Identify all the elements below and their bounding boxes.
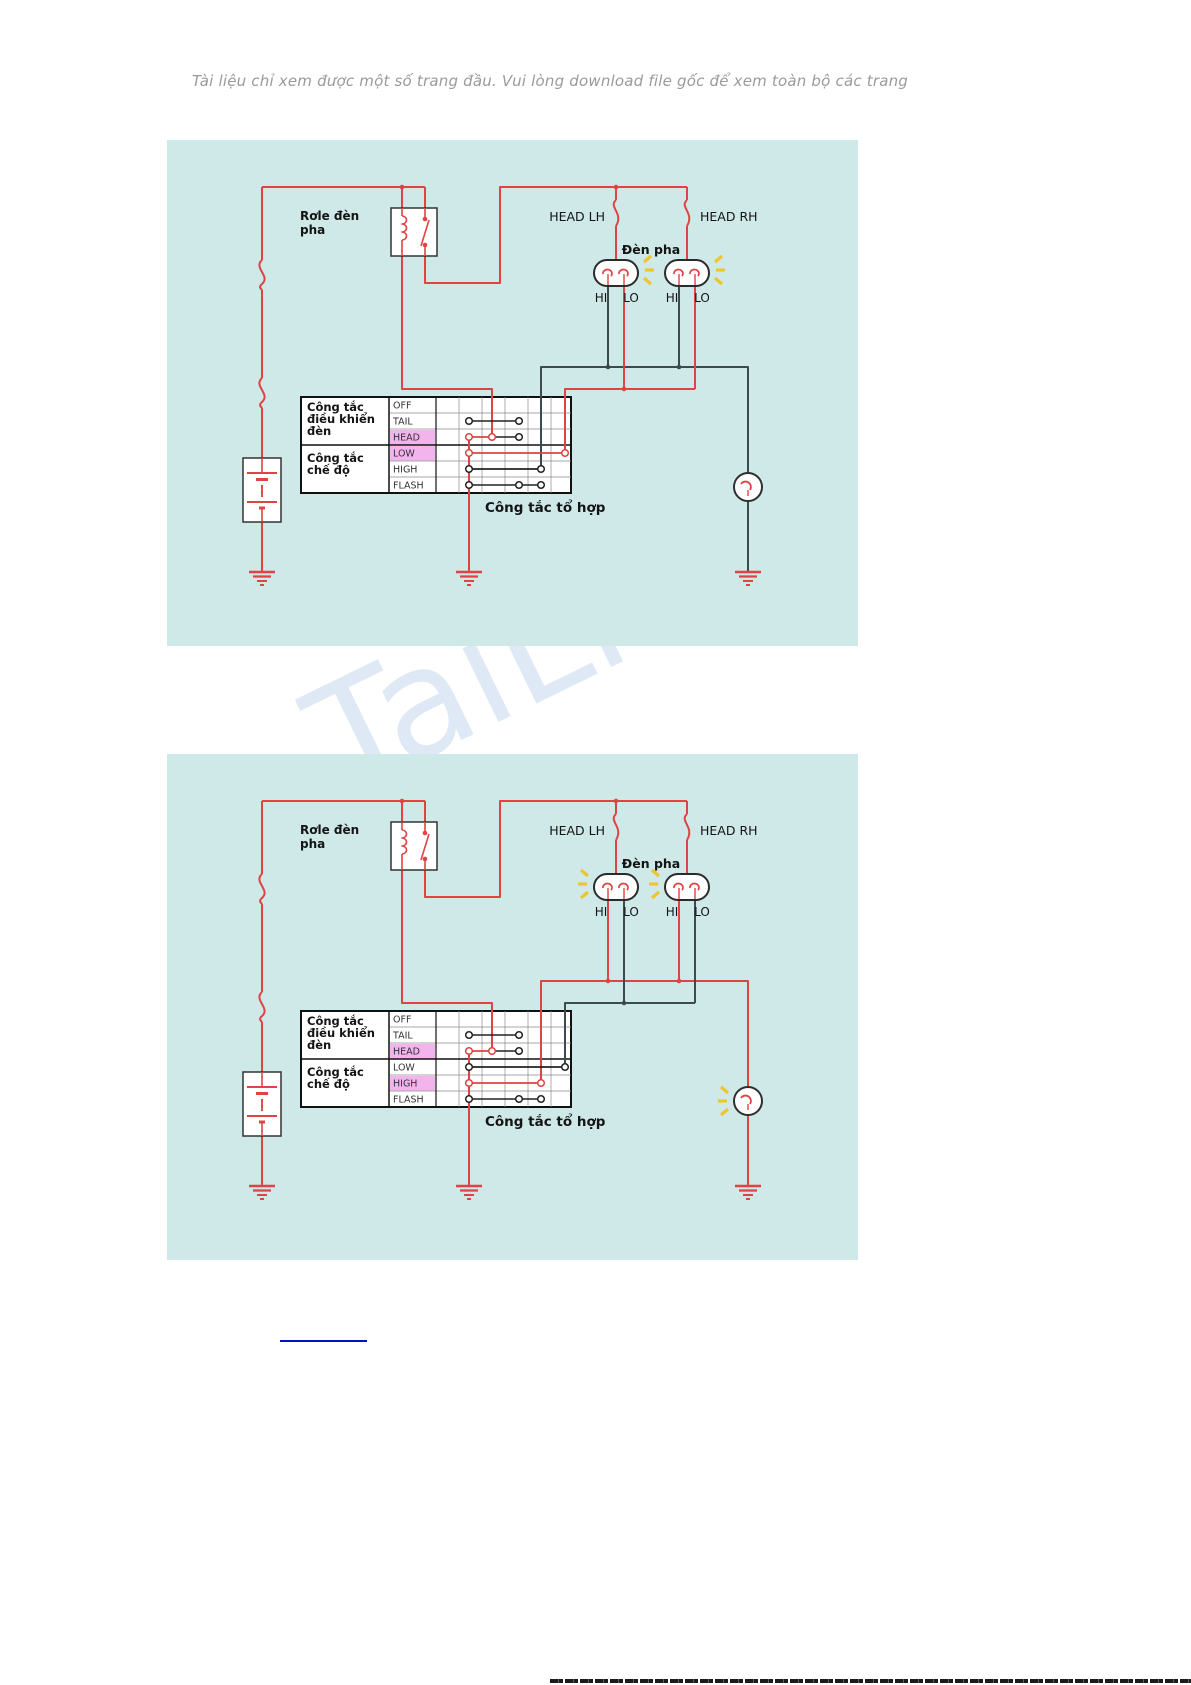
svg-text:Rơle đèn: Rơle đèn xyxy=(300,209,359,223)
svg-text:chế độ: chế độ xyxy=(307,1077,350,1091)
svg-text:HEAD: HEAD xyxy=(393,433,420,444)
high-beam-indicator-bulb xyxy=(734,473,762,501)
svg-text:OFF: OFF xyxy=(393,401,411,412)
svg-text:HEAD LH: HEAD LH xyxy=(549,823,605,838)
headlight-relay-box xyxy=(391,822,437,870)
ground-icon xyxy=(456,1186,482,1199)
combination-switch-table: OFFTAILHEADLOWHIGHFLASHCông tắcđiều khiể… xyxy=(301,1011,606,1130)
ground-icon xyxy=(735,572,761,585)
headlamp-right xyxy=(665,874,709,900)
svg-text:Rơle đèn: Rơle đèn xyxy=(300,823,359,837)
circuit-diagram-high-beam: OFFTAILHEADLOWHIGHFLASHCông tắcđiều khiể… xyxy=(167,754,858,1260)
svg-text:LOW: LOW xyxy=(393,449,415,460)
svg-text:đèn: đèn xyxy=(307,1038,331,1052)
battery xyxy=(243,1072,281,1136)
svg-text:Công tắc tổ hợp: Công tắc tổ hợp xyxy=(485,1113,606,1130)
headlight-relay-box xyxy=(391,208,437,256)
sparkle-icon xyxy=(644,256,654,284)
headlamp-right xyxy=(665,260,709,286)
svg-text:HEAD RH: HEAD RH xyxy=(700,209,758,224)
svg-text:Công tắc tổ hợp: Công tắc tổ hợp xyxy=(485,499,606,516)
ground-icon xyxy=(249,1186,275,1199)
ground-icon xyxy=(249,572,275,585)
high-beam-indicator-bulb xyxy=(734,1087,762,1115)
svg-text:LO: LO xyxy=(694,291,710,305)
svg-text:LO: LO xyxy=(623,291,639,305)
svg-text:HIGH: HIGH xyxy=(393,1079,417,1090)
battery xyxy=(243,458,281,522)
svg-text:FLASH: FLASH xyxy=(393,1095,424,1106)
ground-icon xyxy=(735,1186,761,1199)
svg-text:OFF: OFF xyxy=(393,1015,411,1026)
svg-text:TAIL: TAIL xyxy=(392,417,413,428)
ground-icon xyxy=(456,572,482,585)
page-separator-dashed-line xyxy=(550,1679,1191,1683)
svg-text:HIGH: HIGH xyxy=(393,465,417,476)
preview-notice-text: Tài liệu chỉ xem được một số trang đầu. … xyxy=(80,72,1020,90)
svg-text:LO: LO xyxy=(694,905,710,919)
svg-text:Đèn pha: Đèn pha xyxy=(622,242,680,257)
svg-text:đèn: đèn xyxy=(307,424,331,438)
svg-text:HEAD RH: HEAD RH xyxy=(700,823,758,838)
svg-text:LO: LO xyxy=(623,905,639,919)
sparkle-icon xyxy=(649,870,659,898)
svg-text:pha: pha xyxy=(300,223,325,237)
combination-switch-table: OFFTAILHEADLOWHIGHFLASHCông tắcđiều khiể… xyxy=(301,397,606,516)
svg-text:Đèn pha: Đèn pha xyxy=(622,856,680,871)
svg-text:FLASH: FLASH xyxy=(393,481,424,492)
diagram-panel-low-beam: OFFTAILHEADLOWHIGHFLASHCông tắcđiều khiể… xyxy=(167,140,858,646)
svg-text:HI: HI xyxy=(666,291,679,305)
svg-text:LOW: LOW xyxy=(393,1063,415,1074)
svg-text:HI: HI xyxy=(595,291,608,305)
circuit-diagram-low-beam: OFFTAILHEADLOWHIGHFLASHCông tắcđiều khiể… xyxy=(167,140,858,646)
svg-text:HEAD: HEAD xyxy=(393,1047,420,1058)
svg-text:TAIL: TAIL xyxy=(392,1031,413,1042)
svg-text:HEAD LH: HEAD LH xyxy=(549,209,605,224)
svg-text:chế độ: chế độ xyxy=(307,463,350,477)
headlamp-left xyxy=(594,874,638,900)
diagram-panel-high-beam: OFFTAILHEADLOWHIGHFLASHCông tắcđiều khiể… xyxy=(167,754,858,1260)
svg-text:HI: HI xyxy=(595,905,608,919)
svg-text:pha: pha xyxy=(300,837,325,851)
svg-text:HI: HI xyxy=(666,905,679,919)
sparkle-icon xyxy=(715,256,725,284)
download-link[interactable] xyxy=(280,1326,367,1342)
sparkle-icon xyxy=(718,1087,728,1115)
sparkle-icon xyxy=(578,870,588,898)
headlamp-left xyxy=(594,260,638,286)
